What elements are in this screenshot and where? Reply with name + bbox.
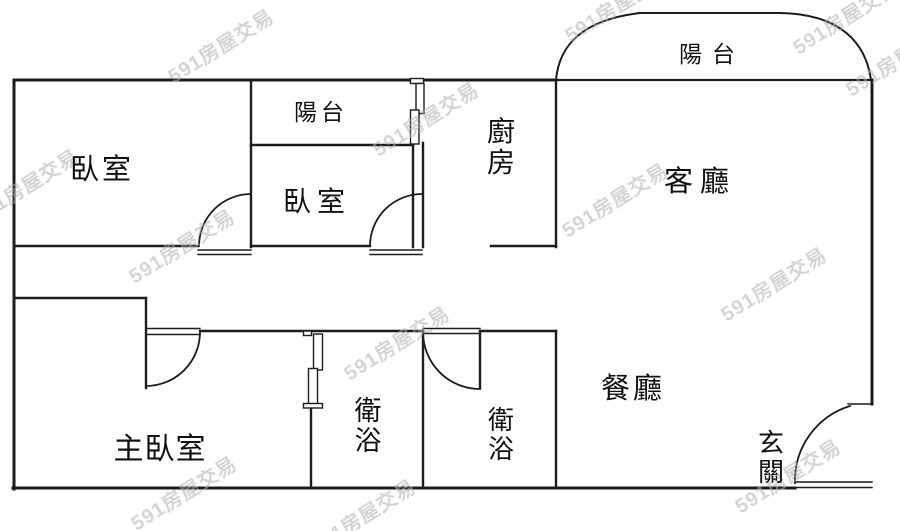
room-label-balcony-top: 陽台 (679, 35, 745, 69)
room-label-kitchen: 廚房 (487, 117, 515, 179)
room-label-bedroom-2: 臥室 (283, 180, 351, 220)
room-label-bathroom-2: 衛浴 (488, 406, 514, 464)
room-label-dining-room: 餐廳 (601, 365, 665, 407)
room-label-living-room: 客廳 (664, 158, 736, 200)
room-label-entry: 玄關 (758, 429, 784, 487)
bathroom2-door-arc (423, 332, 480, 389)
interior-walls (14, 80, 556, 488)
bathroom1-sliding-door-icon (304, 331, 323, 408)
floor-plan: 臥室陽台臥室廚房客廳陽台主臥室衛浴衛浴餐廳玄關 591房屋交易591房屋交易59… (0, 0, 900, 531)
master-door-arc (146, 332, 200, 386)
room-label-bedroom-1: 臥室 (70, 146, 134, 188)
room-label-bathroom-1: 衛浴 (355, 396, 382, 456)
room-label-master-bedroom: 主臥室 (114, 424, 207, 468)
room-label-balcony-small: 陽台 (294, 93, 348, 127)
